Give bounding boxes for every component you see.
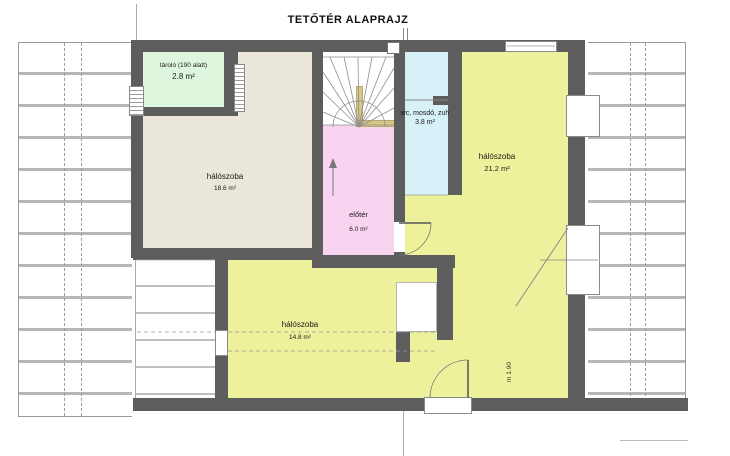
wall-storage-bottom: [143, 107, 224, 116]
label-bedroom-left: hálószoba 18.6 m²: [175, 172, 275, 193]
room-area: 2.8 m²: [143, 72, 224, 82]
bath-divider-block: [433, 96, 448, 105]
roof-dashed-line: [64, 43, 65, 416]
label-hall: előtér 6.0 m²: [323, 210, 394, 235]
room-hall: [323, 125, 394, 255]
label-storage: tároló (190 alatt) 2.8 m²: [143, 62, 224, 82]
wall-middle-vertical: [437, 268, 453, 340]
low-headroom-area: [135, 260, 216, 398]
window-right-upper: [566, 95, 600, 137]
roof-plane-left: [18, 42, 132, 417]
height-marker: m 1.90: [506, 342, 518, 402]
plan-title: TETŐTÉR ALAPRAJZ: [248, 14, 448, 26]
window-right-lower: [566, 225, 600, 295]
room-name: tároló (190 alatt): [143, 62, 224, 70]
wall-stair-left: [312, 40, 323, 265]
wall-stair-right-upper: [394, 40, 405, 222]
window-storage: [234, 64, 245, 112]
roof-dashed-line: [645, 43, 646, 411]
room-name: előtér: [323, 210, 394, 219]
room-area: 21.2 m²: [447, 164, 547, 173]
door-sill-bottom: [424, 397, 472, 414]
room-area: 14.8 m²: [250, 334, 350, 342]
room-name: hálószoba: [250, 320, 350, 330]
label-bedroom-bottom: hálószoba 14.8 m²: [250, 320, 350, 342]
wall-symbol-square: [387, 42, 400, 54]
wall-below-hall: [312, 255, 455, 268]
wall-bottom: [133, 398, 688, 411]
construction-line: [620, 440, 688, 441]
roof-dashed-line: [81, 43, 82, 416]
label-bedroom-right: hálószoba 21.2 m²: [447, 152, 547, 173]
room-area: 18.6 m²: [175, 185, 275, 193]
label-bathroom: wc, mosdó, zuh 3.8 m²: [396, 110, 454, 128]
construction-line: [136, 4, 137, 40]
window-top: [505, 41, 557, 52]
closet-pocket: [396, 282, 437, 332]
window-bottomroom: [215, 330, 228, 356]
room-area: 6.0 m²: [323, 226, 394, 234]
roof-plane-right: [588, 42, 686, 411]
wall-bottomroom-left: [215, 260, 228, 398]
room-name: wc, mosdó, zuh: [396, 110, 454, 119]
room-name: hálószoba: [447, 152, 547, 162]
room-name: hálószoba: [175, 172, 275, 182]
wall-below-bedroom-left: [133, 248, 323, 260]
construction-line: [403, 411, 404, 456]
floor-plan: TETŐTÉR ALAPRAJZ: [0, 0, 730, 456]
window-left: [129, 86, 144, 116]
room-bedroom-left: [238, 52, 312, 248]
wall-stub: [396, 332, 410, 362]
corridor: [405, 195, 453, 262]
roof-dashed-line: [630, 43, 631, 411]
wall-left: [131, 40, 143, 258]
room-area: 3.8 m²: [396, 119, 454, 128]
